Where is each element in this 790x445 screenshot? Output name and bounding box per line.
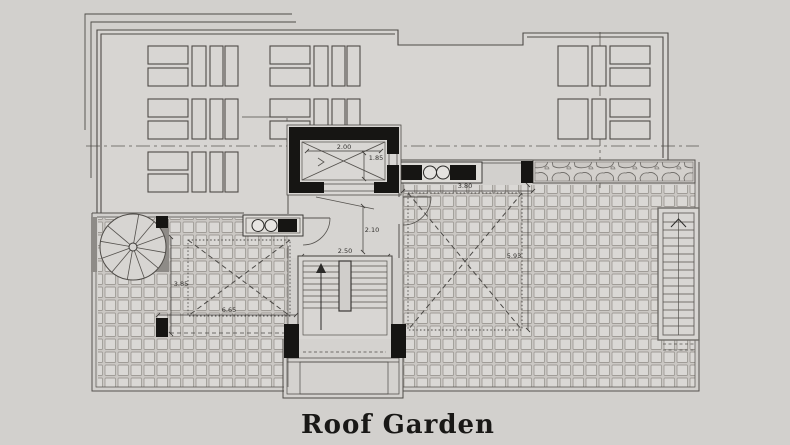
elevator-shaft: 2.00 1.85: [287, 125, 401, 195]
sink-basin-icon: [424, 166, 437, 179]
sink-basin-icon: [252, 220, 264, 232]
right-terrace-tile-pattern: [403, 185, 695, 387]
dim-skylight-right-length: 5.93: [507, 252, 521, 260]
dim-stair-width: 2.50: [338, 247, 352, 255]
right-staircase: [658, 208, 699, 350]
sink-basin-icon: [265, 220, 277, 232]
floor-plan-page: 2.00 1.85 2.10 2.50: [0, 0, 790, 445]
stair-landing: [283, 339, 403, 398]
dim-skylight-left-length: 6.65: [222, 306, 236, 314]
dim-skylight-right-width: 3.80: [458, 182, 472, 190]
main-staircase: [298, 256, 392, 340]
planter: [533, 160, 695, 183]
dim-elevator-width: 2.00: [337, 143, 351, 151]
sink-basin-icon: [437, 166, 450, 179]
bbq-counter: [398, 162, 482, 183]
dim-skylight-left-width: 3.85: [174, 280, 188, 288]
dim-lobby-door: 2.10: [365, 226, 379, 234]
plan-title: Roof Garden: [301, 410, 495, 440]
floor-plan-canvas: 2.00 1.85 2.10 2.50: [0, 0, 790, 445]
left-counter: [243, 215, 303, 236]
dim-elevator-depth: 1.85: [369, 154, 383, 162]
